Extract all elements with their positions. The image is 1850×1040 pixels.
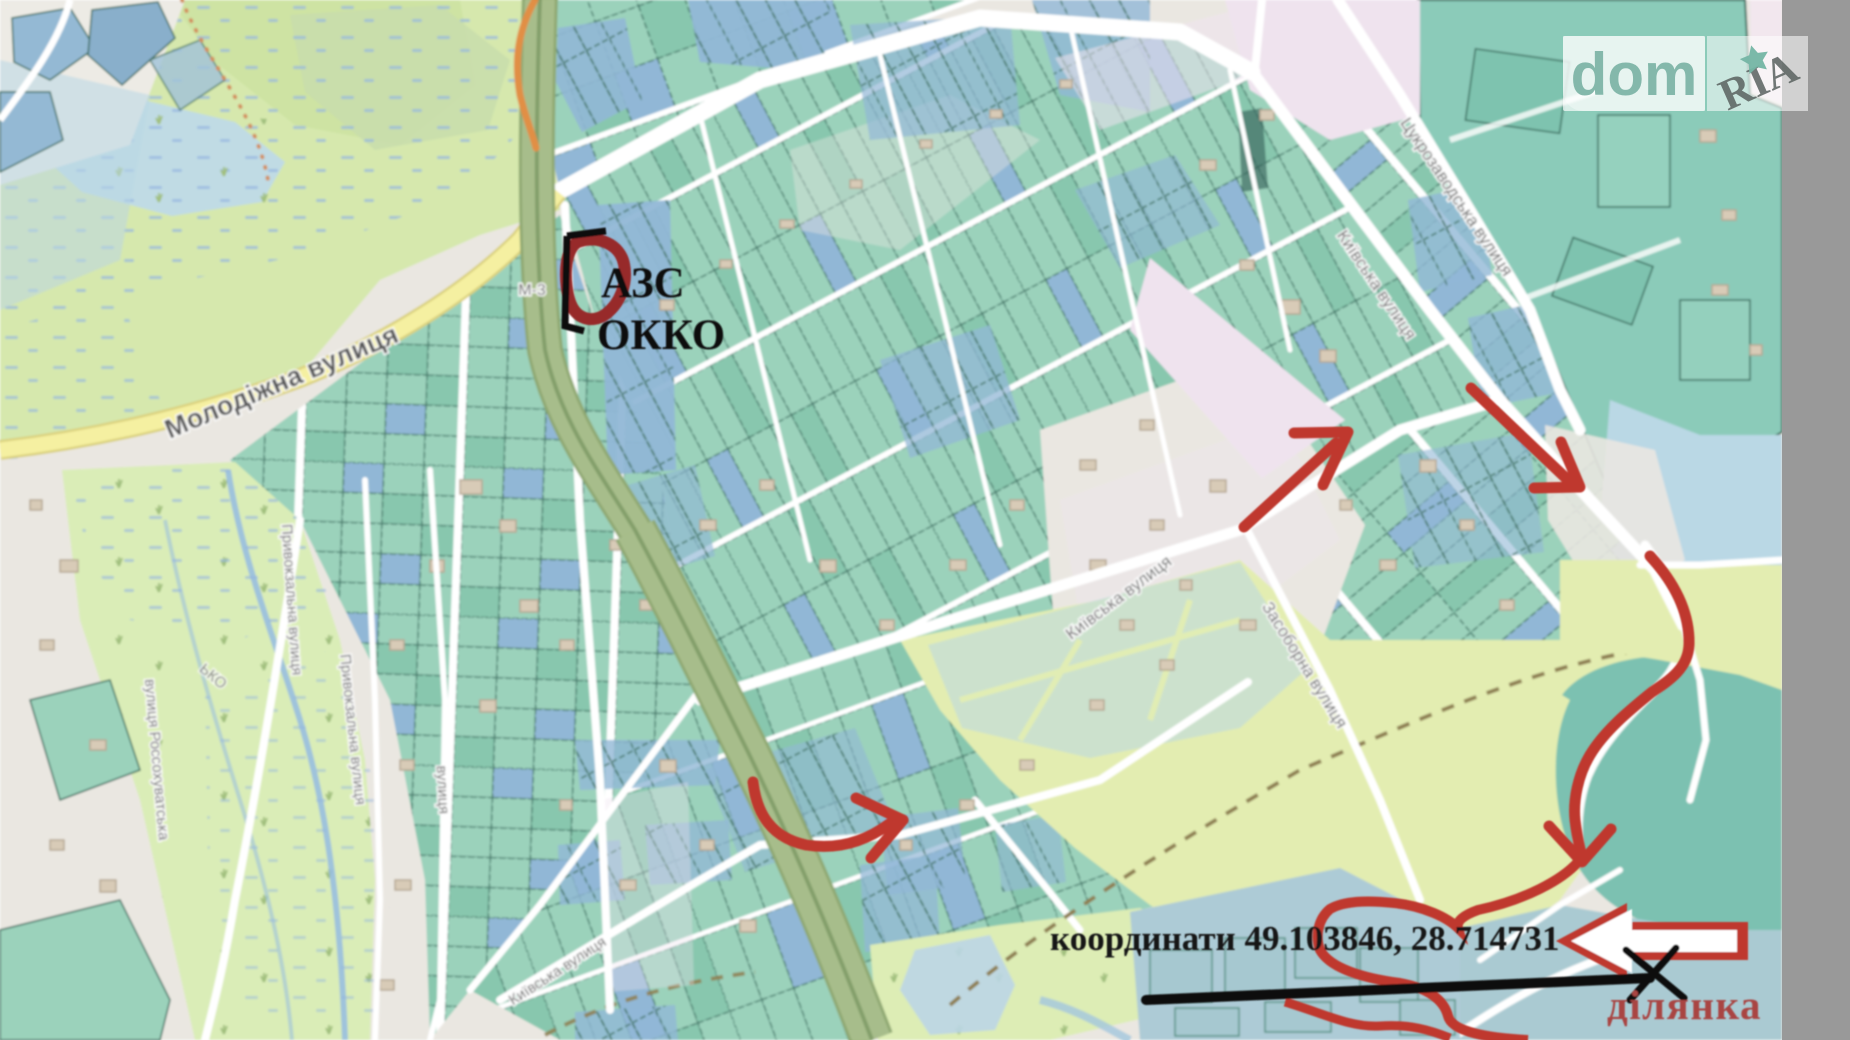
svg-text:ОККО: ОККО bbox=[597, 312, 725, 359]
svg-text:ділянка: ділянка bbox=[1607, 982, 1762, 1028]
svg-text:координати 49.103846, 28.71473: координати 49.103846, 28.714731 bbox=[1050, 919, 1559, 958]
svg-text:dom: dom bbox=[1571, 41, 1698, 108]
svg-text:АЗС: АЗС bbox=[601, 260, 685, 307]
